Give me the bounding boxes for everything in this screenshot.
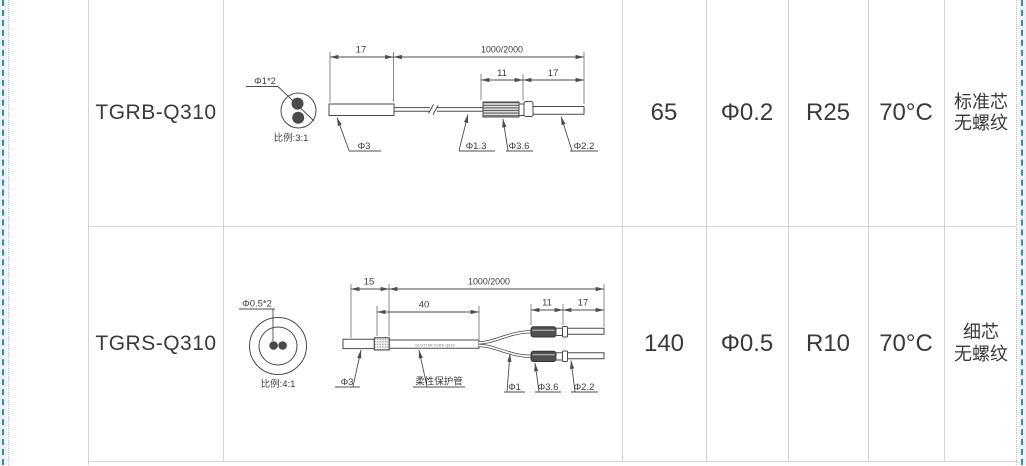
spec-table: TGRB-Q310 65 Φ0.2 R25 70°C 标准芯无螺纹 TGRS-Q…	[88, 0, 1018, 465]
fiber-core-dot	[269, 341, 278, 350]
callout-label: Φ2.2	[574, 382, 595, 393]
knurled-connector	[531, 327, 556, 337]
tip-ferrule	[533, 107, 584, 115]
note-text: 细芯无螺纹	[954, 322, 1008, 365]
dim-label: 40	[419, 300, 430, 311]
callout-label: Φ3.6	[538, 382, 559, 393]
dim-label: 17	[578, 298, 589, 309]
value-text: 70°C	[879, 99, 933, 127]
model-name: TGRS-Q310	[95, 332, 216, 356]
connector-collar	[524, 102, 533, 117]
cable-inner-circle	[259, 327, 297, 365]
value-cell: R10	[788, 226, 868, 461]
callout-label: Φ2.2	[574, 141, 595, 152]
note-line: 细芯	[954, 322, 1008, 344]
connector-collar	[563, 327, 568, 338]
value-cell: Φ0.5	[706, 226, 788, 461]
break-symbol	[429, 105, 434, 114]
model-cell: TGRB-Q310	[89, 0, 223, 226]
extension-lines	[330, 52, 584, 104]
note-cell: 标准芯无螺纹	[944, 0, 1018, 226]
value-text: 140	[644, 330, 684, 358]
value-text: 70°C	[879, 330, 933, 358]
value-cell: 70°C	[868, 226, 944, 461]
value-text: R25	[806, 99, 850, 127]
scale-label: 比例:3:1	[274, 132, 309, 144]
callout-label: Φ3	[358, 141, 371, 152]
connector-neck	[556, 353, 563, 360]
diagram-cell-tgrs: Φ0.5*2 比例:4:1	[223, 226, 622, 461]
print-area-dotted-line-left	[8, 0, 9, 465]
sensor-head	[329, 104, 394, 116]
page-break-line-right	[1021, 0, 1023, 465]
knurled-connector	[531, 351, 556, 361]
break-symbol	[433, 106, 438, 115]
page-break-line-left	[2, 0, 4, 465]
model-name: TGRB-Q310	[95, 101, 216, 125]
datasheet-page: { "page": { "kind": "fiber-sensor-spec-t…	[0, 0, 1026, 465]
value-cell: 65	[622, 0, 706, 226]
value-text: Φ0.2	[721, 99, 774, 127]
value-cell: 140	[622, 226, 706, 461]
tip-ferrule	[568, 353, 605, 359]
probe-outline: GLOTTER TGRS-Q310	[343, 327, 604, 362]
dim-label: 17	[548, 68, 559, 79]
scale-label: 比例:4:1	[261, 378, 296, 390]
dimension-labels: 15 1000/2000 40 11 17	[364, 277, 589, 311]
value-text: 65	[651, 99, 678, 127]
probe-outline	[329, 102, 584, 118]
connector-neck	[519, 104, 524, 116]
leader-callouts: Φ3 Φ1.3 Φ3.6 Φ2.2	[337, 115, 598, 153]
cross-section-label: Φ1*2	[254, 76, 276, 87]
cross-section-detail: Φ1*2 比例:3:1	[246, 76, 316, 144]
callout-label: Φ3.6	[509, 141, 530, 152]
dim-label: 11	[497, 68, 507, 79]
tip-ferrule	[568, 328, 605, 334]
callout-label: 柔性保护管	[415, 376, 463, 388]
fiber-core-dot	[292, 112, 304, 124]
dimension-lines	[330, 57, 584, 80]
cross-section-label: Φ0.5*2	[242, 299, 272, 310]
callout-label: Φ1.3	[466, 141, 487, 152]
note-line: 无螺纹	[954, 113, 1008, 135]
diagram-cell-tgrb: Φ1*2 比例:3:1	[223, 0, 622, 226]
note-text: 标准芯无螺纹	[954, 92, 1008, 135]
knurled-connector	[483, 102, 519, 117]
cross-section-detail: Φ0.5*2 比例:4:1	[239, 299, 307, 391]
model-cell: TGRS-Q310	[89, 226, 223, 461]
dim-label: 11	[542, 298, 552, 309]
callout-label: Φ1	[508, 382, 521, 393]
fiber-core-dot	[278, 341, 287, 350]
grid-line	[89, 461, 1018, 462]
fiber-core-dot	[292, 98, 304, 110]
value-text: R10	[806, 330, 850, 358]
dim-label: 1000/2000	[468, 277, 510, 288]
dimension-labels: 17 1000/2000 11 17	[356, 45, 559, 80]
note-line: 标准芯	[954, 92, 1008, 114]
tube-print-text: GLOTTER TGRS-Q310	[415, 343, 454, 347]
dim-label: 15	[364, 277, 375, 288]
note-line: 无螺纹	[954, 344, 1008, 366]
dim-label: 17	[356, 45, 367, 56]
probe-drawing-tgrb: Φ1*2 比例:3:1	[223, 0, 622, 226]
dim-label: 1000/2000	[481, 45, 523, 56]
probe-drawing-tgrs: Φ0.5*2 比例:4:1	[223, 226, 622, 461]
sensor-head	[343, 339, 374, 348]
connector-collar	[563, 351, 568, 362]
connector-neck	[556, 328, 563, 335]
value-cell: R25	[788, 0, 868, 226]
note-cell: 细芯无螺纹	[944, 226, 1018, 461]
value-cell: Φ0.2	[706, 0, 788, 226]
value-text: Φ0.5	[721, 330, 774, 358]
cable-jacket-circle	[250, 318, 307, 375]
callout-label: Φ3	[341, 377, 354, 388]
knurled-collar	[374, 338, 389, 350]
value-cell: 70°C	[868, 0, 944, 226]
